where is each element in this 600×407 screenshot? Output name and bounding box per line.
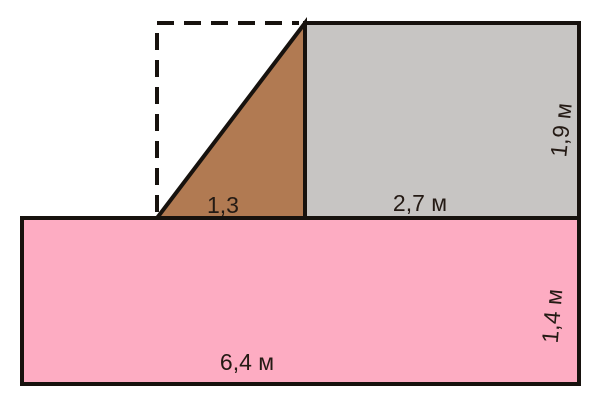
geometry-diagram: 1,3 2,7 м 1,9 м 6,4 м 1,4 м <box>0 0 600 407</box>
brown-triangle <box>157 23 305 218</box>
triangle-base-label: 1,3 <box>190 192 256 218</box>
pink-width-label: 6,4 м <box>202 349 292 375</box>
dashed-rectangle-outline <box>157 23 299 212</box>
gray-width-label: 2,7 м <box>375 190 465 216</box>
pink-rectangle <box>20 216 581 386</box>
